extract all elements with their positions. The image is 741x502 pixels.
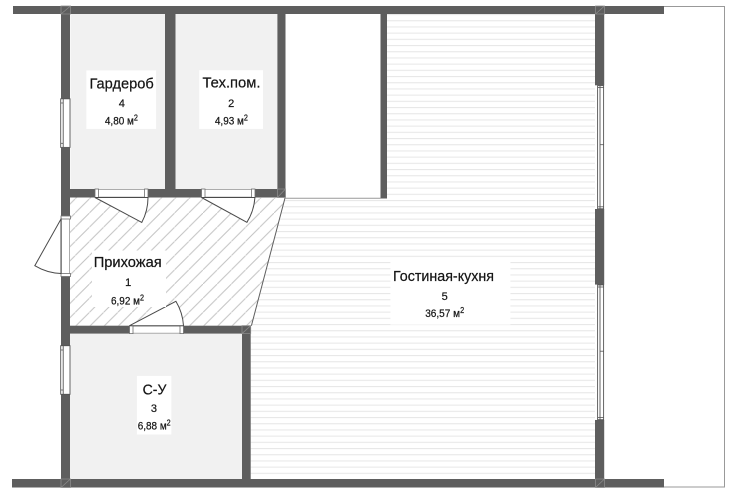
svg-text:С-У: С-У xyxy=(143,381,167,398)
svg-text:4,93 м2: 4,93 м2 xyxy=(215,113,248,127)
svg-text:3: 3 xyxy=(151,403,157,415)
svg-text:4: 4 xyxy=(119,98,125,110)
svg-text:4,80 м2: 4,80 м2 xyxy=(105,113,138,127)
svg-text:36,57 м2: 36,57 м2 xyxy=(425,306,465,320)
svg-text:Гардероб: Гардероб xyxy=(89,76,153,93)
svg-text:6,92 м2: 6,92 м2 xyxy=(111,294,144,308)
svg-text:Тех.пом.: Тех.пом. xyxy=(203,75,261,92)
svg-text:Прихожая: Прихожая xyxy=(94,254,162,271)
svg-text:5: 5 xyxy=(442,291,448,303)
svg-text:Гостиная-кухня: Гостиная-кухня xyxy=(393,268,494,285)
svg-text:2: 2 xyxy=(228,98,234,110)
svg-text:6,88 м2: 6,88 м2 xyxy=(138,419,171,433)
svg-text:1: 1 xyxy=(125,277,131,289)
